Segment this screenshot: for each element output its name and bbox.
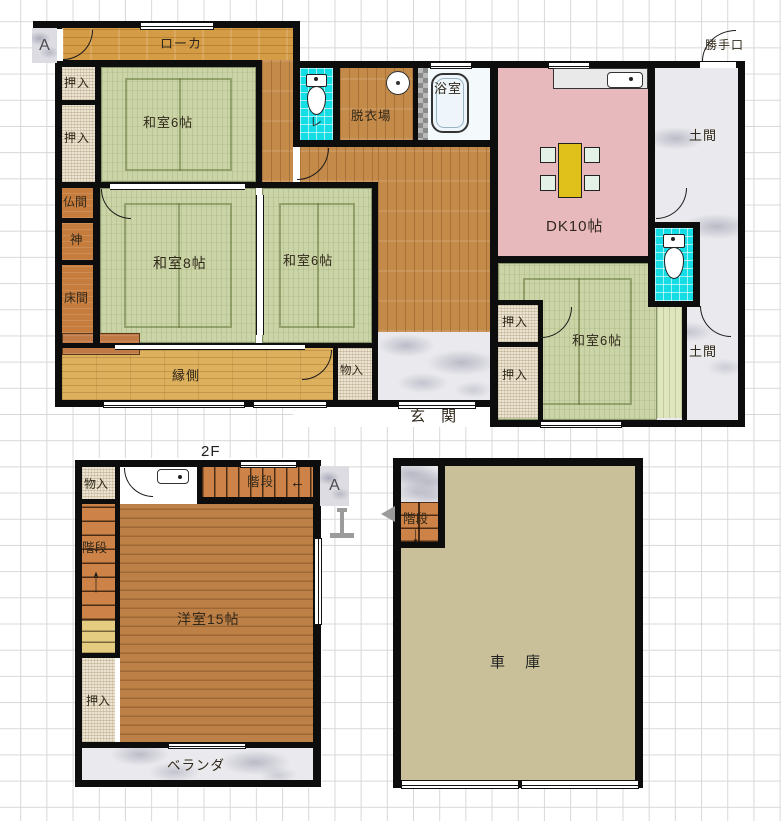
room-closet-4 <box>498 347 538 418</box>
sliding-door <box>256 195 264 335</box>
wall <box>55 260 93 265</box>
entry-arrow-icon <box>381 506 395 522</box>
wall <box>738 61 745 427</box>
label-kami: 神 <box>70 234 84 247</box>
label-closet-2: 押入 <box>64 132 90 144</box>
wall <box>682 307 687 420</box>
stairs-garage-arrow: ↓ <box>412 523 420 545</box>
label-garage: 車 庫 <box>490 655 548 670</box>
label-tokonoma: 床間 <box>64 292 88 304</box>
label-stairs-top: 階段 <box>247 476 274 489</box>
window <box>168 743 246 749</box>
section-marker-a-2f: A <box>320 466 349 506</box>
toilet-icon <box>305 74 327 114</box>
wall <box>293 21 300 147</box>
label-backdoor: 勝手口 <box>705 39 744 51</box>
window <box>540 421 622 428</box>
wall <box>75 499 120 504</box>
stairs-left-arrow: ↑ <box>92 565 101 600</box>
wall <box>333 61 340 147</box>
wall <box>115 460 120 502</box>
wall <box>75 460 82 787</box>
garage-door <box>521 780 639 789</box>
floorplan-canvas: A ローカ 押入 押入 和室6帖 レ 脱衣場 浴室 DK10帖 勝手口 土間 土… <box>0 0 781 821</box>
window <box>314 538 322 625</box>
label-dk: DK10帖 <box>546 219 604 234</box>
wall <box>490 256 655 263</box>
wall <box>693 222 700 307</box>
wall <box>498 300 543 305</box>
label-stairs-left: 階段 <box>82 542 107 555</box>
label-dressing: 脱衣場 <box>351 110 392 123</box>
label-closet-1: 押入 <box>64 77 90 89</box>
label-washitsu6-1: 和室6帖 <box>143 116 193 129</box>
label-2f-title: 2F <box>201 444 221 459</box>
chair <box>540 147 556 163</box>
window <box>253 401 327 408</box>
label-closet-3: 押入 <box>502 316 528 328</box>
label-closet-4: 押入 <box>502 369 528 381</box>
wall <box>293 61 745 68</box>
label-storage-2f: 物入 <box>84 478 108 490</box>
board-strip <box>657 307 682 418</box>
section-line-icon <box>330 508 354 538</box>
label-corridor: ローカ <box>160 37 202 50</box>
garage-door <box>401 780 519 789</box>
wall <box>75 653 120 658</box>
label-yoshitsu15: 洋室15帖 <box>177 612 240 626</box>
wall <box>333 343 338 405</box>
window <box>430 62 472 69</box>
garage-stairs-landing <box>401 466 438 502</box>
sink-icon <box>157 469 189 484</box>
window <box>240 461 297 468</box>
label-veranda: ベランダ <box>167 759 225 773</box>
washing-machine-icon <box>386 71 410 95</box>
label-engawa: 縁側 <box>172 369 200 382</box>
wall <box>293 140 498 147</box>
section-marker-a-1f: A <box>32 28 57 63</box>
chair <box>584 147 600 163</box>
room-corridor-vertical <box>262 60 293 182</box>
wall <box>95 60 101 182</box>
wall <box>498 342 543 347</box>
chair <box>584 175 600 191</box>
window <box>103 401 245 408</box>
label-toilet-1: レ <box>310 116 323 128</box>
wall <box>256 60 262 182</box>
wall <box>393 458 643 466</box>
label-doma-1: 土間 <box>689 129 717 142</box>
backdoor-opening <box>700 62 736 68</box>
dining-table <box>558 143 582 198</box>
bath-tile-strip <box>418 68 428 140</box>
wall <box>55 100 95 105</box>
label-doma-2: 土間 <box>689 345 717 358</box>
wall <box>635 458 643 788</box>
room-hall <box>378 147 490 332</box>
wall <box>115 504 120 654</box>
stairs-top-arrow: ← <box>290 475 306 490</box>
wall <box>413 61 418 147</box>
label-washitsu8: 和室8帖 <box>153 256 207 270</box>
sliding-door <box>115 344 305 350</box>
wall <box>648 61 655 228</box>
wall <box>372 182 378 407</box>
wall <box>55 21 62 407</box>
label-washitsu6-3: 和室6帖 <box>572 334 622 347</box>
label-butsuma: 仏間 <box>63 196 87 208</box>
wall <box>648 301 700 307</box>
label-bath: 浴室 <box>434 82 462 95</box>
wall <box>93 182 100 348</box>
kitchen-counter <box>553 68 648 89</box>
label-genkan: 玄 関 <box>410 409 462 424</box>
label-closet-2f: 押入 <box>86 695 110 707</box>
wall <box>75 780 321 787</box>
wall <box>55 60 256 67</box>
wall <box>648 222 700 228</box>
chair <box>540 175 556 191</box>
toilet-icon <box>662 234 686 278</box>
wall <box>648 222 655 307</box>
label-storage-1f: 物入 <box>340 366 363 378</box>
wall <box>55 218 93 223</box>
label-washitsu6-2: 和室6帖 <box>283 254 333 267</box>
section-marker-label: A <box>39 37 50 55</box>
wall <box>438 458 445 548</box>
wall <box>490 61 498 407</box>
wall <box>197 497 321 504</box>
window <box>140 22 214 30</box>
room-genkan <box>378 332 490 400</box>
section-marker-label: A <box>329 477 340 495</box>
stairs-2f-left-lower <box>82 620 115 654</box>
